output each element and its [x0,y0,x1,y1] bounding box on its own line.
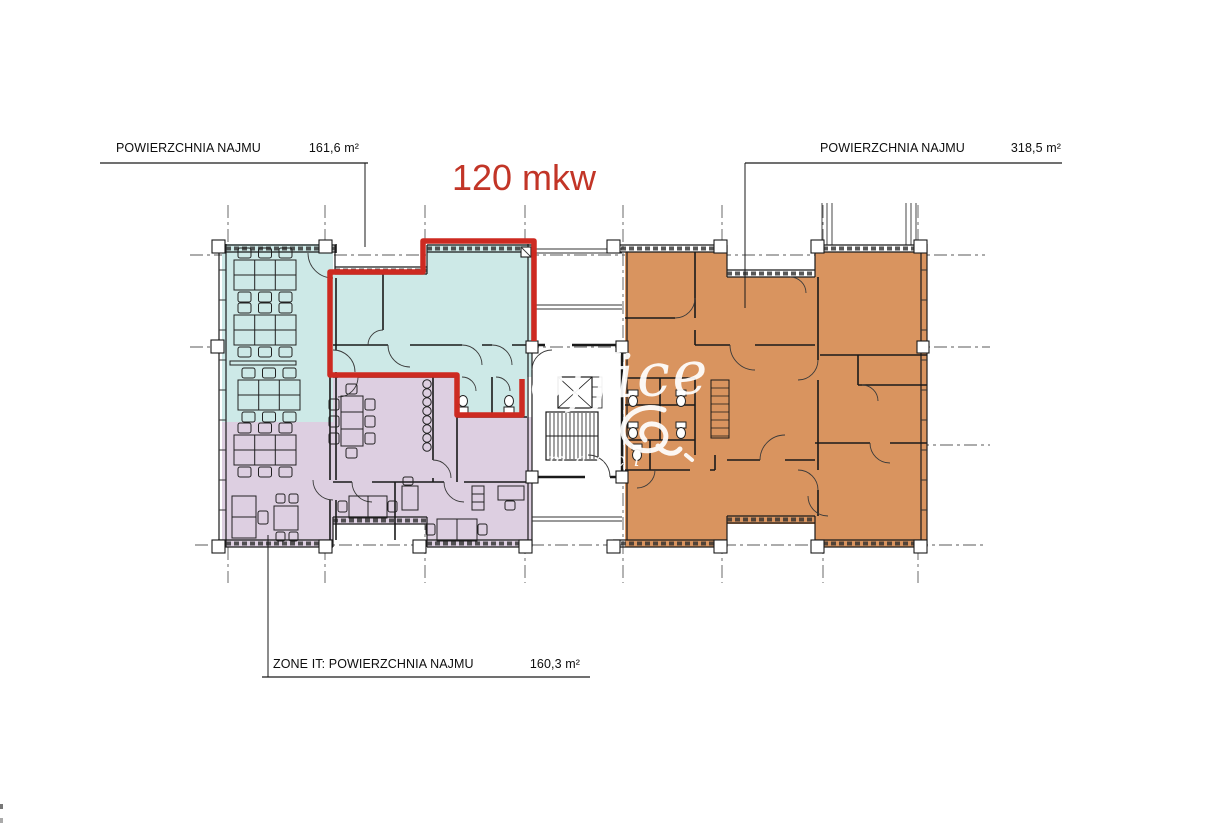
area-value: 318,5 m² [1011,141,1061,155]
floorplan-image: office masci POWIERZCHNIA NAJMU 161,6 m²… [0,0,1225,831]
annotation-top-left: POWIERZCHNIA NAJMU 161,6 m² [100,141,368,247]
area-label: ZONE IT: POWIERZCHNIA NAJMU [273,657,474,671]
roof-column-marks [822,203,916,245]
area-label: POWIERZCHNIA NAJMU [116,141,261,155]
watermark-text: office [527,338,711,417]
highlight-label: 120 mkw [452,157,597,198]
hatched-pilaster [521,247,531,257]
area-value: 161,6 m² [309,141,359,155]
highlight-area-text: 120 mkw [452,157,597,198]
watermark-tagline: masci [548,449,649,471]
screen-artifacts [0,804,3,823]
area-value: 160,3 m² [530,657,580,671]
area-label: POWIERZCHNIA NAJMU [820,141,965,155]
annotation-bottom: ZONE IT: POWIERZCHNIA NAJMU 160,3 m² [262,535,590,677]
